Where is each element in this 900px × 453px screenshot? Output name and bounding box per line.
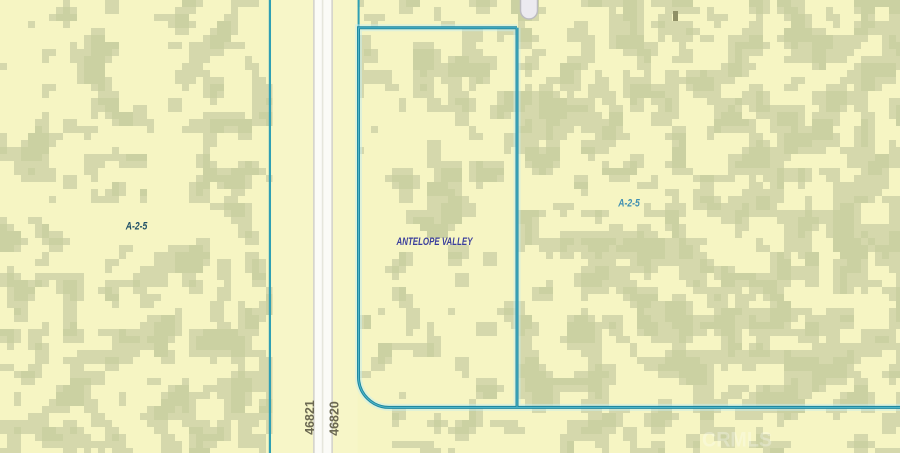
svg-text:46820: 46820 <box>327 401 342 436</box>
svg-text:46821: 46821 <box>302 400 317 435</box>
svg-text:ANTELOPE VALLEY: ANTELOPE VALLEY <box>396 236 474 248</box>
svg-text:A-2-5: A-2-5 <box>125 221 148 233</box>
svg-text:A-2-5: A-2-5 <box>617 198 640 210</box>
svg-text:CRMLS: CRMLS <box>702 429 772 452</box>
